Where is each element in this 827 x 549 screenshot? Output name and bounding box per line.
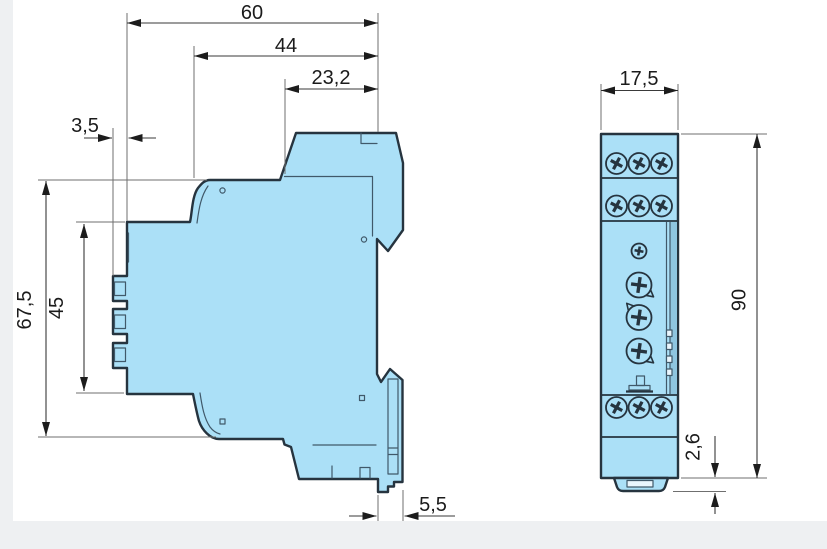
front-label-strip	[670, 222, 677, 394]
front-strip-window-3	[667, 356, 673, 363]
dim-depth-total: 60	[241, 2, 263, 24]
dimension-drawing-canvas: 60 44 23,2 3,5 67,5 45 5,5	[0, 0, 827, 549]
dim-rail-clip-depth: 5,5	[419, 494, 447, 516]
front-strip-window-1	[667, 330, 673, 337]
side-view-body-outline	[113, 133, 403, 492]
side-view	[113, 133, 403, 492]
page-left-band	[0, 0, 13, 549]
front-strip-window-4	[667, 369, 673, 376]
front-view	[601, 134, 678, 491]
dim-height: 90	[729, 289, 751, 311]
page-bottom-band	[0, 521, 827, 549]
dim-width: 17,5	[620, 68, 659, 90]
dim-depth-front-block: 23,2	[312, 67, 351, 89]
dim-terminal-protrusion: 3,5	[71, 115, 99, 137]
drawing-svg: 60 44 23,2 3,5 67,5 45 5,5	[0, 0, 827, 549]
front-tab-slot	[627, 481, 653, 488]
dim-depth-body: 44	[275, 35, 297, 57]
dim-height-terminal-section: 45	[46, 297, 68, 319]
dim-bottom-tab-height: 2,6	[683, 433, 705, 461]
front-strip-window-2	[667, 343, 673, 350]
dim-height-body: 67,5	[14, 291, 36, 330]
